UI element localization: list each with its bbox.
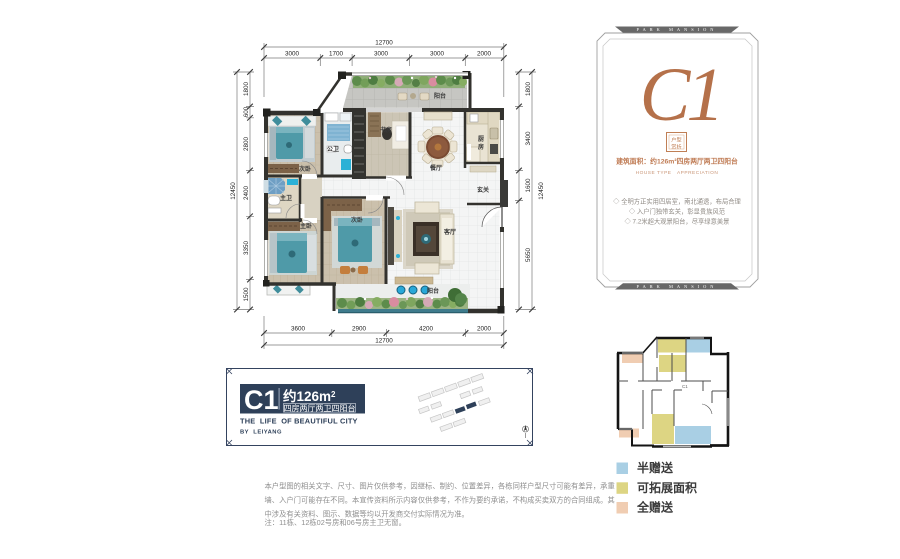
svg-text:3000: 3000: [374, 51, 389, 58]
svg-text:四房两厅两卫四阳台: 四房两厅两卫四阳台: [284, 403, 356, 413]
svg-text:厨: 厨: [478, 135, 484, 143]
svg-text:THE LIFE OF BEAUTIFUL CITY: THE LIFE OF BEAUTIFUL CITY: [240, 417, 358, 426]
svg-text:3000: 3000: [285, 51, 300, 58]
svg-text:客厅: 客厅: [443, 228, 456, 236]
svg-text:C1: C1: [682, 384, 688, 389]
svg-text:注：11栋、12栋02号房和06号房主卫无窗。: 注：11栋、12栋02号房和06号房主卫无窗。: [265, 518, 406, 527]
svg-text:次卧: 次卧: [351, 216, 363, 224]
svg-text:1700: 1700: [329, 51, 344, 58]
svg-text:半赠送: 半赠送: [637, 460, 674, 475]
svg-text:PARK MANSION: PARK MANSION: [637, 27, 718, 32]
svg-text:◇ 7.2米超大观景阳台，尽享绿意美景: ◇ 7.2米超大观景阳台，尽享绿意美景: [625, 217, 730, 226]
svg-text:12700: 12700: [375, 40, 393, 47]
svg-text:1800: 1800: [525, 82, 532, 97]
svg-text:◇ 入户门独带玄关，彰显贵族风范: ◇ 入户门独带玄关，彰显贵族风范: [629, 207, 726, 216]
svg-text:1500: 1500: [243, 287, 250, 302]
svg-text:12450: 12450: [538, 182, 545, 200]
svg-text:C1: C1: [244, 385, 279, 415]
svg-text:C1: C1: [640, 53, 721, 137]
svg-text:全赠送: 全赠送: [636, 500, 674, 515]
svg-text:1800: 1800: [243, 82, 250, 97]
svg-text:赏析: 赏析: [671, 143, 681, 151]
svg-text:2800: 2800: [243, 137, 250, 152]
svg-text:次卧: 次卧: [299, 165, 311, 173]
svg-text:书房: 书房: [380, 126, 392, 134]
svg-text:12450: 12450: [230, 182, 237, 200]
svg-text:墙、入户门可能存在不同。本宣传资料所示内容仅供参考，不作为要: 墙、入户门可能存在不同。本宣传资料所示内容仅供参考，不作为要约承诺，不构成买卖双…: [265, 496, 615, 505]
svg-text:3350: 3350: [243, 241, 250, 256]
svg-text:建筑面积：约126m²四房两厅两卫四阳台: 建筑面积：约126m²四房两厅两卫四阳台: [615, 157, 738, 166]
svg-text:HOUSE TYPE APPRECIATION: HOUSE TYPE APPRECIATION: [636, 170, 719, 176]
svg-text:5650: 5650: [525, 248, 532, 263]
svg-text:本户型图的相关文字、尺寸、图片仅供参考，因继标、制约、位置差: 本户型图的相关文字、尺寸、图片仅供参考，因继标、制约、位置差异，各栋同样户型尺寸…: [265, 482, 615, 491]
svg-text:2900: 2900: [352, 326, 367, 333]
svg-text:2000: 2000: [477, 326, 492, 333]
svg-text:◇ 全明方正实用四居室，南北通透，布局合理: ◇ 全明方正实用四居室，南北通透，布局合理: [613, 197, 741, 206]
svg-text:3000: 3000: [430, 51, 445, 58]
svg-text:2000: 2000: [477, 51, 492, 58]
svg-text:玄关: 玄关: [477, 186, 489, 194]
svg-text:公卫: 公卫: [327, 146, 339, 153]
svg-text:4200: 4200: [419, 326, 434, 333]
svg-text:BY LEIYANG: BY LEIYANG: [240, 430, 282, 436]
svg-text:阳台: 阳台: [427, 287, 439, 295]
svg-text:主卫: 主卫: [280, 194, 292, 202]
svg-text:餐厅: 餐厅: [429, 164, 442, 172]
svg-text:房: 房: [478, 143, 484, 151]
svg-text:12700: 12700: [375, 338, 393, 345]
svg-text:可拓展面积: 可拓展面积: [637, 480, 697, 495]
svg-text:约126m2: 约126m2: [283, 388, 336, 404]
svg-text:户型: 户型: [671, 136, 681, 144]
svg-text:3600: 3600: [291, 326, 306, 333]
svg-text:主卧: 主卧: [300, 222, 312, 230]
svg-text:阳台: 阳台: [434, 92, 446, 100]
svg-text:600: 600: [243, 106, 250, 117]
svg-text:3400: 3400: [525, 131, 532, 146]
svg-text:1600: 1600: [525, 178, 532, 193]
svg-text:2400: 2400: [243, 186, 250, 201]
svg-text:PARK MANSION: PARK MANSION: [637, 284, 718, 289]
